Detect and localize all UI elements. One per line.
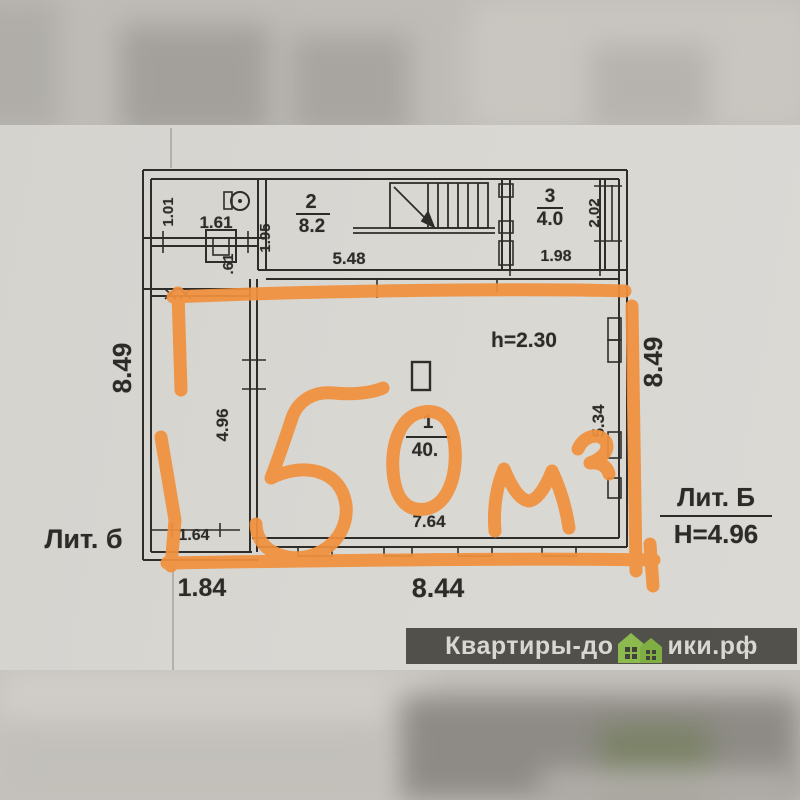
watermark-text-right: ики.рф bbox=[668, 632, 758, 661]
floor-plan-photo: { "plan": { "litera_left": "Лит. б", "li… bbox=[0, 0, 800, 800]
highlight-right bbox=[632, 306, 636, 571]
highlight-top bbox=[173, 290, 625, 297]
digit-0 bbox=[393, 412, 455, 510]
highlight-bottom bbox=[167, 559, 654, 563]
blur-blob bbox=[540, 770, 800, 800]
highlight-right-cap bbox=[650, 544, 653, 586]
digit-5-body bbox=[256, 421, 346, 558]
letter-m bbox=[494, 469, 569, 531]
photo-blur-bottom bbox=[0, 670, 800, 800]
blur-blob bbox=[0, 670, 430, 725]
watermark-text-left: Квартиры-до bbox=[445, 632, 613, 661]
highlight-left-lower bbox=[161, 437, 175, 566]
blur-blob bbox=[0, 730, 380, 800]
handwritten-area-50m2 bbox=[256, 388, 609, 558]
houses-icon bbox=[615, 630, 667, 664]
digit-5-top bbox=[291, 388, 383, 421]
watermark-banner: Квартиры-до ики.рф bbox=[406, 628, 797, 664]
superscript-2 bbox=[578, 436, 609, 474]
highlight-left-upper bbox=[178, 293, 181, 390]
